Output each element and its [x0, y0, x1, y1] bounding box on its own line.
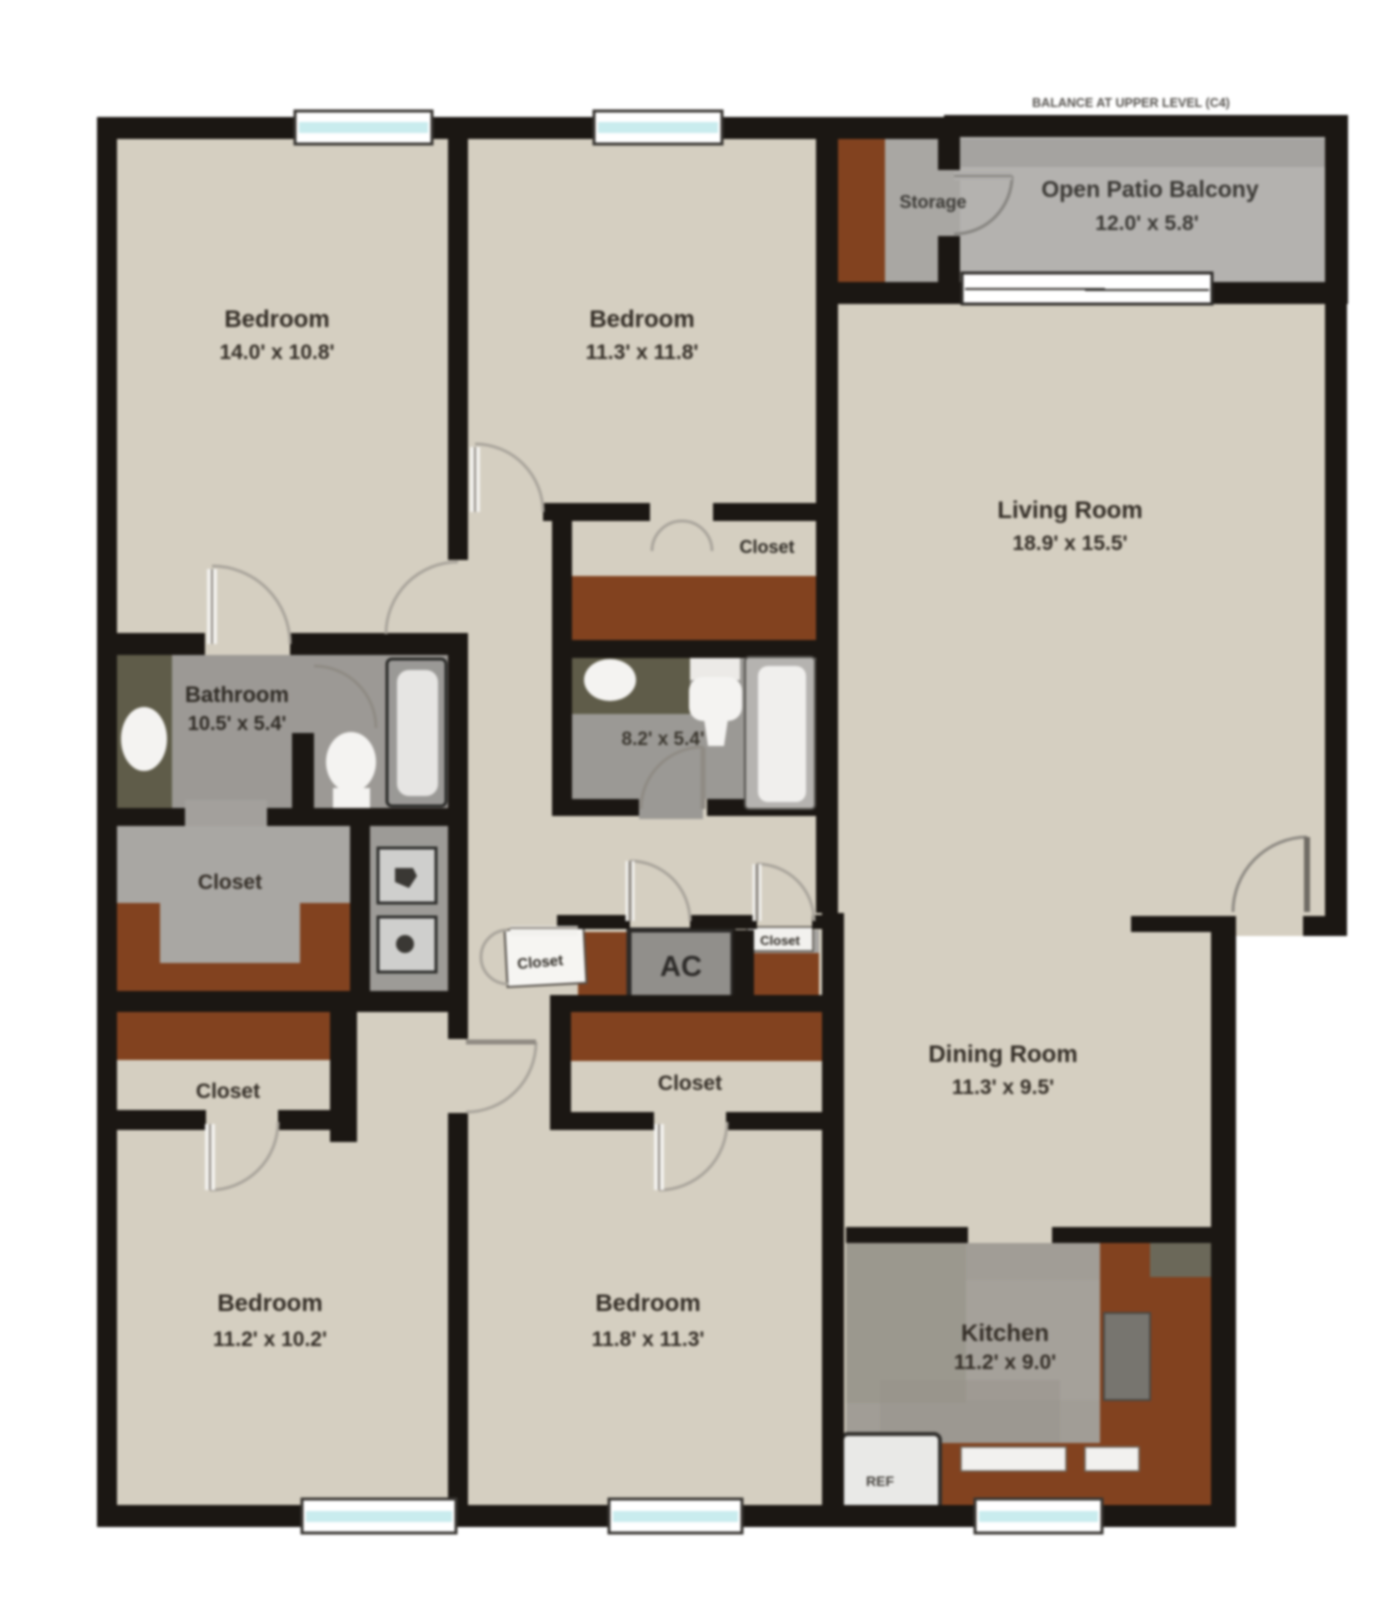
svg-text:Dining Room: Dining Room: [928, 1041, 1077, 1068]
svg-text:Bathroom: Bathroom: [185, 682, 289, 707]
svg-text:12.0' x 5.8': 12.0' x 5.8': [1095, 212, 1198, 235]
svg-text:14.0' x 10.8': 14.0' x 10.8': [219, 341, 334, 364]
svg-text:11.8' x 11.3': 11.8' x 11.3': [592, 1328, 705, 1351]
svg-text:11.2' x 9.0': 11.2' x 9.0': [954, 1351, 1056, 1374]
svg-text:11.3' x 11.8': 11.3' x 11.8': [586, 341, 699, 364]
svg-text:BALANCE AT UPPER LEVEL (C4): BALANCE AT UPPER LEVEL (C4): [1032, 96, 1230, 110]
svg-text:Bedroom: Bedroom: [217, 1290, 322, 1317]
svg-text:18.9' x 15.5': 18.9' x 15.5': [1012, 532, 1127, 555]
svg-text:Kitchen: Kitchen: [961, 1320, 1049, 1347]
svg-text:Open Patio Balcony: Open Patio Balcony: [1041, 176, 1258, 202]
svg-text:Storage: Storage: [899, 192, 966, 212]
svg-text:AC: AC: [660, 951, 702, 983]
svg-text:Closet: Closet: [196, 1080, 260, 1103]
svg-text:11.3' x 9.5': 11.3' x 9.5': [952, 1076, 1054, 1099]
svg-text:Closet: Closet: [658, 1072, 722, 1095]
svg-text:Closet: Closet: [739, 537, 794, 557]
svg-text:Closet: Closet: [760, 933, 800, 948]
svg-text:11.2' x 10.2': 11.2' x 10.2': [213, 1328, 327, 1351]
svg-text:Bedroom: Bedroom: [224, 306, 329, 333]
svg-text:Living Room: Living Room: [997, 497, 1142, 524]
svg-text:REF: REF: [866, 1473, 894, 1489]
svg-text:Bedroom: Bedroom: [595, 1290, 700, 1317]
svg-text:10.5' x 5.4': 10.5' x 5.4': [188, 713, 286, 735]
svg-text:Closet: Closet: [198, 871, 262, 894]
svg-text:Bedroom: Bedroom: [589, 306, 694, 333]
